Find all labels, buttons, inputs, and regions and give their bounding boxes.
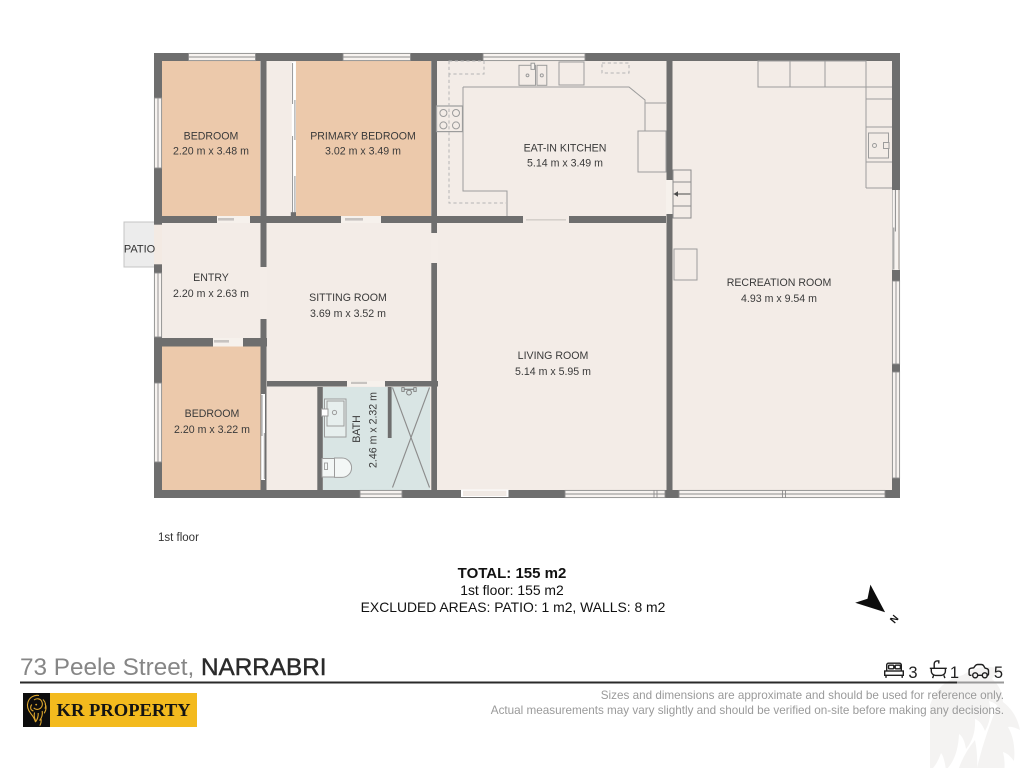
svg-text:BEDROOM: BEDROOM xyxy=(185,408,240,420)
svg-text:SITTING ROOM: SITTING ROOM xyxy=(309,292,387,304)
svg-text:Sizes and dimensions are appro: Sizes and dimensions are approximate and… xyxy=(601,689,1004,702)
svg-text:5.14 m x 5.95 m: 5.14 m x 5.95 m xyxy=(515,366,591,378)
svg-text:3: 3 xyxy=(908,664,917,682)
svg-text:PATIO: PATIO xyxy=(124,244,156,256)
svg-text:1st floor: 155 m2: 1st floor: 155 m2 xyxy=(460,582,564,598)
svg-text:4.93 m x 9.54 m: 4.93 m x 9.54 m xyxy=(741,293,817,305)
svg-text:LIVING ROOM: LIVING ROOM xyxy=(518,350,589,362)
svg-text:2.20 m x 3.22 m: 2.20 m x 3.22 m xyxy=(174,424,250,436)
svg-text:1: 1 xyxy=(950,664,959,682)
svg-text:2.46 m x 2.32 m: 2.46 m x 2.32 m xyxy=(368,392,380,468)
svg-text:RECREATION ROOM: RECREATION ROOM xyxy=(727,277,832,289)
svg-text:BEDROOM: BEDROOM xyxy=(184,131,239,143)
svg-text:N: N xyxy=(888,613,901,626)
svg-text:3.02 m x 3.49 m: 3.02 m x 3.49 m xyxy=(325,146,401,158)
svg-text:KR PROPERTY: KR PROPERTY xyxy=(57,700,191,720)
svg-text:ENTRY: ENTRY xyxy=(193,272,229,284)
svg-text:BATH: BATH xyxy=(351,415,363,442)
svg-text:2.20 m x 3.48 m: 2.20 m x 3.48 m xyxy=(173,146,249,158)
svg-text:Actual measurements may vary s: Actual measurements may vary slightly an… xyxy=(491,704,1004,717)
svg-text:73 Peele Street, NARRABRI: 73 Peele Street, NARRABRI xyxy=(20,654,327,681)
svg-text:TOTAL: 155 m2: TOTAL: 155 m2 xyxy=(458,565,567,582)
svg-text:EXCLUDED AREAS: PATIO: 1 m2, W: EXCLUDED AREAS: PATIO: 1 m2, WALLS: 8 m2 xyxy=(361,599,666,615)
svg-text:EAT-IN KITCHEN: EAT-IN KITCHEN xyxy=(524,143,607,155)
svg-text:PRIMARY BEDROOM: PRIMARY BEDROOM xyxy=(310,131,416,143)
svg-text:1st floor: 1st floor xyxy=(158,532,199,544)
svg-text:3.69 m x 3.52 m: 3.69 m x 3.52 m xyxy=(310,308,386,320)
svg-text:5.14 m x 3.49 m: 5.14 m x 3.49 m xyxy=(527,158,603,170)
svg-text:2.20 m x 2.63 m: 2.20 m x 2.63 m xyxy=(173,288,249,300)
svg-text:5: 5 xyxy=(994,664,1003,682)
